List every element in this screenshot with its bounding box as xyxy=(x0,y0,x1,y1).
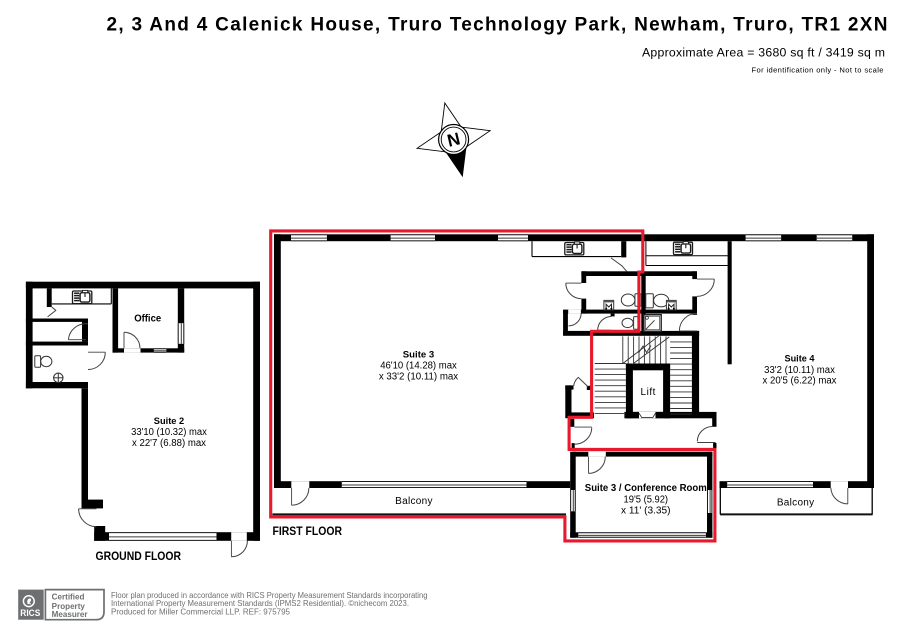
svg-text:Suite 3: Suite 3 xyxy=(403,349,434,360)
svg-text:Certified: Certified xyxy=(52,592,85,601)
svg-text:33'2 (10.11) max: 33'2 (10.11) max xyxy=(764,365,835,376)
svg-text:RICS: RICS xyxy=(20,608,40,618)
svg-text:Balcony: Balcony xyxy=(395,496,432,507)
svg-text:Suite 3 / Conference Room: Suite 3 / Conference Room xyxy=(585,483,707,494)
svg-text:Approximate Area = 3680 sq ft: Approximate Area = 3680 sq ft / 3419 sq … xyxy=(642,45,885,59)
svg-text:33'10 (10.32) max: 33'10 (10.32) max xyxy=(131,427,207,438)
svg-text:GROUND FLOOR: GROUND FLOOR xyxy=(96,551,182,563)
svg-text:2, 3 And 4 Calenick House, Tru: 2, 3 And 4 Calenick House, Truro Technol… xyxy=(107,15,888,36)
svg-text:x 33'2 (10.11) max: x 33'2 (10.11) max xyxy=(379,371,458,382)
svg-text:For identification only - Not: For identification only - Not to scale xyxy=(752,65,884,74)
svg-text:Suite 4: Suite 4 xyxy=(785,354,816,365)
svg-text:Produced for Miller Commercial: Produced for Miller Commercial LLP. REF:… xyxy=(111,607,291,616)
svg-text:x 11' (3.35): x 11' (3.35) xyxy=(621,506,671,517)
svg-text:Lift: Lift xyxy=(641,387,656,398)
svg-text:46'10 (14.28) max: 46'10 (14.28) max xyxy=(380,361,457,372)
svg-text:x 22'7 (6.88) max: x 22'7 (6.88) max xyxy=(132,438,206,449)
svg-text:Suite 2: Suite 2 xyxy=(154,416,184,427)
svg-text:FIRST FLOOR: FIRST FLOOR xyxy=(273,526,343,538)
svg-text:Office: Office xyxy=(134,313,161,324)
svg-text:19'5 (5.92): 19'5 (5.92) xyxy=(624,495,669,506)
svg-text:x 20'5 (6.22) max: x 20'5 (6.22) max xyxy=(763,376,837,387)
svg-text:Balcony: Balcony xyxy=(777,497,814,508)
svg-text:Measurer: Measurer xyxy=(52,610,88,619)
